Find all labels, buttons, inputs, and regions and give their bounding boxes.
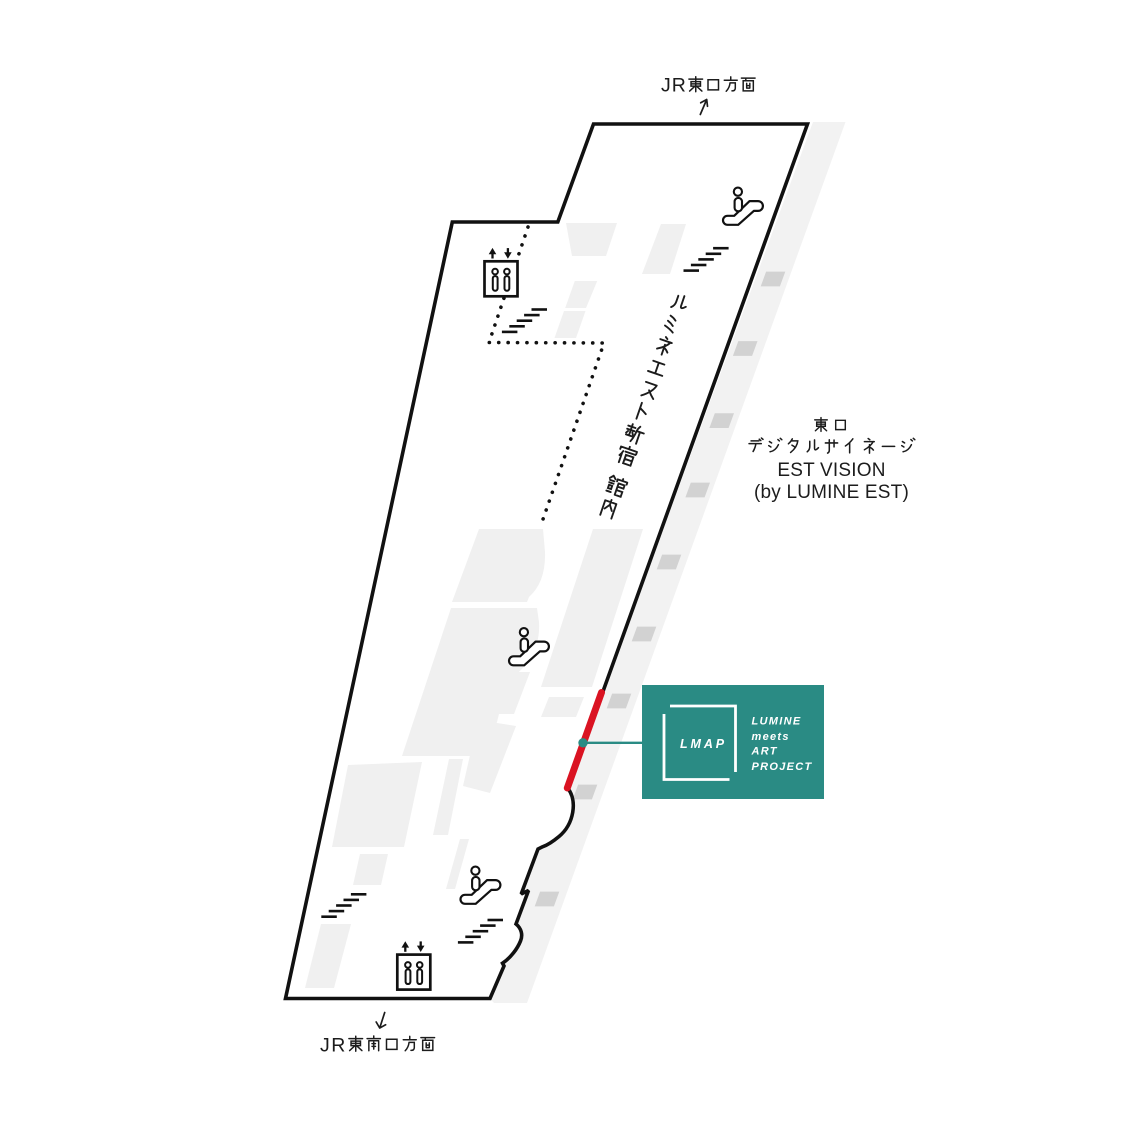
svg-text:ART: ART <box>751 746 778 758</box>
svg-text:JR: JR <box>320 1035 347 1057</box>
svg-text:(by LUMINE EST): (by LUMINE EST) <box>754 482 909 503</box>
svg-text:PROJECT: PROJECT <box>752 761 813 773</box>
svg-text:LUMINE: LUMINE <box>752 716 802 728</box>
svg-text:LMAP: LMAP <box>680 737 727 751</box>
svg-text:meets: meets <box>752 731 790 743</box>
svg-text:EST VISION: EST VISION <box>777 460 885 481</box>
svg-text:JR: JR <box>661 75 687 97</box>
